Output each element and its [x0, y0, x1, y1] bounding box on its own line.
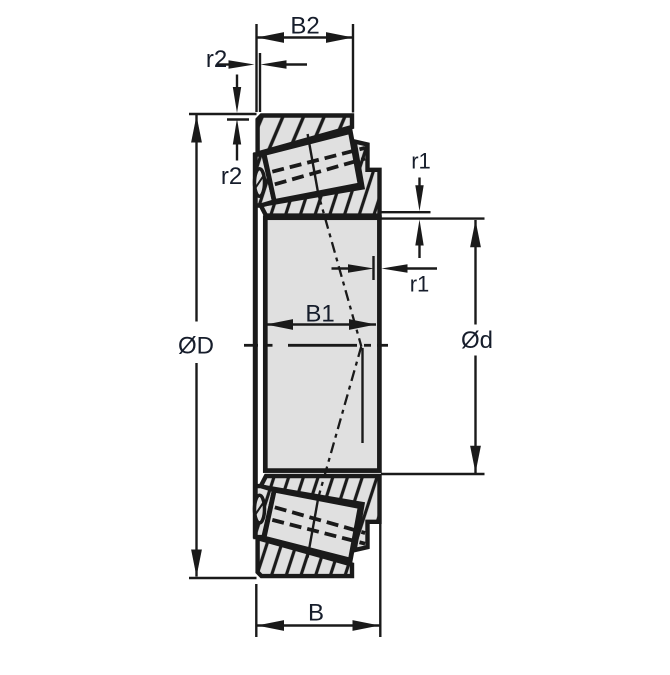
svg-text:r2: r2 [206, 46, 227, 73]
svg-text:ØD: ØD [178, 333, 214, 360]
svg-text:Ød: Ød [461, 327, 493, 354]
svg-text:B2: B2 [290, 13, 319, 40]
svg-text:r1: r1 [411, 149, 431, 174]
svg-text:B1: B1 [305, 301, 334, 328]
svg-text:r2: r2 [221, 163, 242, 190]
svg-text:r1: r1 [410, 272, 430, 297]
svg-text:B: B [308, 600, 324, 627]
